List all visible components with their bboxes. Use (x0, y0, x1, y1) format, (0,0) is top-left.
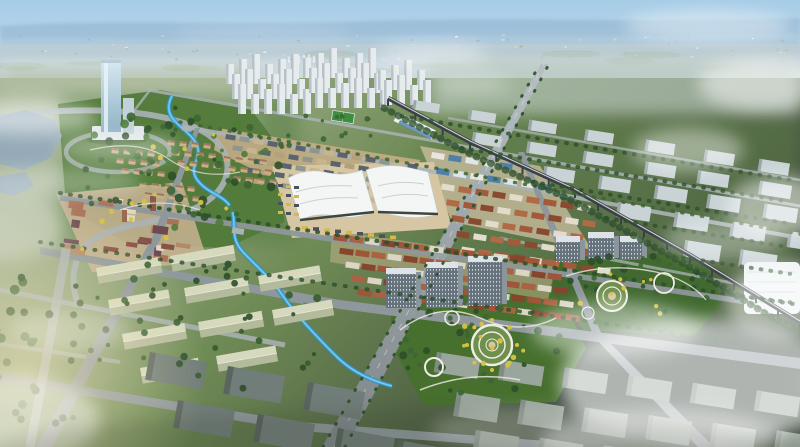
park-tree (465, 329, 469, 333)
distant-building (160, 37, 162, 38)
kiosk (368, 233, 374, 237)
tower-slab-shade (232, 74, 235, 99)
park-tree (168, 171, 177, 180)
park-tree (605, 253, 612, 260)
park-tree (254, 160, 258, 164)
kiosk (294, 204, 299, 207)
distant-building (618, 54, 620, 55)
distant-building (569, 36, 571, 38)
distant-building (668, 43, 670, 44)
park-tree (171, 224, 178, 231)
yellow-tree (142, 199, 147, 204)
distant-building (346, 45, 349, 46)
park-tree (194, 114, 201, 121)
distant-building (779, 52, 781, 53)
distant-building (565, 46, 567, 48)
yellow-tree (479, 335, 483, 339)
warehouse-tree (239, 385, 246, 392)
pier (548, 180, 550, 186)
rendering-canvas (0, 0, 800, 447)
tower-slab-shade (290, 94, 293, 114)
distant-building (329, 39, 332, 40)
distant-building (501, 39, 504, 40)
yellow-tree (163, 235, 168, 240)
warehouse-tree (312, 352, 316, 356)
yellow-tree (479, 322, 484, 327)
distant-building (338, 40, 341, 42)
tower-cap (101, 60, 121, 63)
park-tree (225, 178, 231, 184)
park-tree (567, 278, 574, 285)
distant-building (192, 51, 195, 52)
park-tree (139, 170, 143, 174)
warehouse-tree (300, 364, 306, 370)
kiosk (286, 203, 291, 206)
field-tree (286, 142, 292, 148)
field-tree (321, 119, 324, 122)
yellow-tree (129, 201, 133, 205)
kiosk (335, 230, 341, 234)
kiosk (278, 184, 283, 187)
office-roof (588, 232, 614, 238)
park-tree (175, 194, 184, 203)
park-tree (214, 161, 222, 169)
park-tree (597, 258, 603, 264)
yellow-tree (211, 133, 215, 137)
park-tree (212, 157, 216, 161)
field-tree (286, 133, 291, 138)
yellow-tree (481, 361, 486, 366)
park-tree (496, 304, 504, 312)
distant-building (661, 55, 663, 56)
park-tree (655, 258, 660, 263)
warehouse-tree (224, 261, 231, 268)
park-tree (522, 362, 527, 367)
kiosk (294, 195, 299, 198)
tower-slab-shade (384, 80, 387, 105)
distant-building (515, 46, 517, 47)
office-side (580, 240, 585, 260)
office-windows (468, 262, 502, 306)
kiosk (278, 202, 283, 205)
distant-building (625, 52, 627, 54)
distant-building (196, 50, 198, 52)
park-tree (161, 182, 166, 187)
yellow-tree (515, 343, 519, 347)
yellow-tree (465, 343, 469, 347)
park-tree (173, 128, 177, 132)
cloud (172, 27, 352, 41)
distant-building (44, 50, 47, 51)
distant-building (644, 37, 647, 38)
park-tree (407, 347, 413, 353)
distant-building (75, 53, 77, 55)
yellow-tree (649, 278, 653, 282)
park-tree (459, 295, 463, 299)
yellow-tree (609, 272, 613, 276)
distant-building (167, 52, 170, 54)
yellow-tree (185, 166, 190, 171)
park-tree (234, 212, 239, 217)
park-tree (423, 347, 430, 354)
office-roof (556, 236, 580, 242)
kiosk (294, 186, 299, 189)
park-tree (641, 284, 646, 289)
distant-building (561, 52, 563, 53)
office-side (502, 260, 507, 304)
park-tree (584, 284, 588, 288)
warehouse-tree (243, 317, 247, 321)
park-tree (406, 365, 411, 370)
distant-building (520, 46, 523, 48)
cloud (432, 75, 512, 93)
warehouse-tree (256, 337, 263, 344)
distant-building (161, 36, 164, 37)
distant-building (236, 54, 238, 56)
cloud (632, 128, 744, 172)
field-tree (259, 136, 263, 140)
distant-building (455, 36, 458, 38)
yellow-tree (462, 324, 467, 329)
distant-building (507, 39, 509, 41)
office-side (458, 266, 463, 306)
warehouse-tree (241, 292, 245, 296)
park-tree (274, 161, 282, 169)
field-tree (303, 114, 308, 119)
distant-building (126, 49, 128, 50)
yellow-tree (490, 368, 494, 372)
park-tree (228, 204, 236, 212)
yellow-tree (609, 292, 613, 296)
tower-slab-shade (251, 94, 254, 114)
tower-slab-shade (423, 80, 426, 105)
park-tree (170, 132, 175, 137)
warehouse-tree (193, 277, 200, 284)
park-tree (167, 186, 176, 195)
distant-building (356, 35, 358, 37)
park-tree (650, 253, 657, 260)
distant-building (87, 39, 89, 41)
tower-slab-shade (226, 64, 229, 84)
distant-building (614, 39, 617, 40)
tower-slab-shade (410, 85, 413, 105)
yellow-tree (490, 318, 494, 322)
park-tree (231, 178, 239, 186)
park-tree (578, 276, 583, 281)
park-tree (127, 112, 136, 121)
warehouse-tree (204, 269, 209, 274)
warehouse-tree (244, 275, 250, 281)
tower-slab-shade (264, 89, 267, 114)
warehouse-tree (305, 360, 311, 366)
park-tree (458, 390, 464, 396)
distant-building (613, 40, 615, 42)
kiosk (346, 231, 352, 235)
park-tree (201, 213, 209, 221)
cloud (56, 135, 180, 161)
yellow-tree (472, 361, 476, 365)
cloud (624, 10, 792, 42)
warehouse-tree (212, 345, 218, 351)
yellow-tree (621, 286, 626, 291)
distant-building (569, 56, 571, 57)
distant-building (476, 40, 479, 42)
yellow-tree (182, 147, 187, 152)
tower-slab-shade (238, 84, 241, 114)
tower-slab-shade (309, 68, 312, 93)
distant-building (112, 44, 115, 45)
yellow-tree (129, 217, 133, 221)
yellow-tree (198, 200, 203, 205)
park-tree (246, 124, 253, 131)
distant-building (785, 50, 788, 52)
aerial-city-rendering (0, 0, 800, 447)
park-tree (258, 151, 262, 155)
distant-building (578, 39, 581, 40)
mist (10, 310, 130, 350)
yellow-tree (490, 346, 495, 351)
distant-building (70, 54, 72, 56)
park-tree (591, 275, 596, 280)
warehouse-tree (313, 294, 321, 302)
distant-building (690, 56, 693, 58)
warehouse-tree (291, 312, 295, 316)
yellow-tree (521, 349, 525, 353)
kiosk (379, 234, 385, 238)
cloud (376, 43, 488, 65)
park-tree (488, 378, 494, 384)
warehouse-tree (224, 273, 231, 280)
park-tree (412, 353, 417, 358)
distant-building (635, 55, 637, 57)
park-tree (447, 316, 452, 321)
park-tree (448, 388, 452, 392)
field-tree (343, 131, 348, 136)
park-tree (588, 258, 596, 266)
park-tree (696, 283, 700, 287)
tower-slab-shade (303, 89, 306, 114)
park-tree (638, 263, 643, 268)
park-tree (267, 182, 276, 191)
park-tree (190, 211, 197, 218)
kiosk (390, 236, 396, 240)
distant-building (110, 56, 112, 57)
tower-slab-shade (328, 88, 331, 108)
park-tree (215, 219, 223, 227)
warehouse-tree (285, 291, 292, 298)
distant-building (162, 49, 164, 50)
distant-building (776, 49, 779, 51)
distant-building (263, 51, 266, 53)
field-tree (248, 133, 253, 138)
field-tree (340, 114, 345, 119)
kiosk (286, 194, 291, 197)
distant-building (781, 40, 783, 42)
distant-building (502, 34, 505, 35)
distant-building (731, 50, 733, 51)
distant-building (696, 47, 698, 48)
tower-slab-shade (378, 70, 381, 90)
yellow-tree (642, 280, 645, 283)
park-tree (668, 261, 673, 266)
tower-slab-shade (315, 78, 318, 108)
park-tree (244, 181, 252, 189)
tower-slab-shade (277, 84, 280, 114)
park-tree (147, 169, 152, 174)
distant-building (410, 39, 412, 41)
kiosk (294, 213, 299, 216)
park-tree (640, 256, 645, 261)
tower-highlight (104, 62, 108, 132)
tower-slab-shade (367, 88, 370, 108)
park-tree (399, 351, 407, 359)
park-tree (120, 119, 129, 128)
park-tree (694, 270, 699, 275)
yellow-tree (153, 193, 157, 197)
distant-building (283, 54, 285, 56)
tower-slab-shade (303, 58, 306, 78)
yellow-tree (511, 355, 517, 361)
field-tree (321, 136, 327, 142)
park-tree (403, 337, 409, 343)
tower-slab-shade (341, 83, 344, 108)
kiosk (286, 185, 291, 188)
park-tree (241, 151, 248, 158)
distant-building (125, 47, 128, 48)
field-tree (369, 134, 373, 138)
town-tower (122, 210, 127, 222)
distant-building (248, 53, 251, 54)
park-tree (465, 333, 470, 338)
park-tree (196, 155, 203, 162)
park-tree (187, 118, 194, 125)
kiosk (278, 211, 283, 214)
yellow-tree (497, 338, 502, 343)
distant-building (369, 39, 371, 41)
field-tree (335, 115, 339, 119)
park-tree (258, 173, 263, 178)
park-tree (231, 127, 236, 132)
park-tree (112, 197, 119, 204)
park-tree (262, 148, 268, 154)
park-tree (417, 362, 422, 367)
office-side (614, 236, 619, 258)
warehouse-tree (231, 280, 238, 287)
office-windows (620, 242, 642, 260)
kiosk (324, 228, 330, 232)
kiosk (286, 212, 291, 215)
office-roof (386, 268, 416, 274)
distant-building (41, 51, 44, 52)
yellow-tree (224, 206, 228, 210)
field-tree (364, 116, 370, 122)
cloud (664, 220, 784, 260)
yellow-tree (472, 325, 476, 329)
kiosk (357, 232, 363, 236)
mist (532, 302, 700, 358)
yellow-tree (508, 325, 512, 329)
park-tree (144, 127, 150, 133)
park-tree (220, 149, 224, 153)
warehouse-tree (239, 329, 244, 334)
park-tree (456, 329, 464, 337)
park-tree (690, 276, 695, 281)
field-tree (279, 144, 284, 149)
yellow-tree (508, 361, 512, 365)
park-tree (473, 308, 479, 314)
kiosk (278, 193, 283, 196)
park-tree (173, 106, 177, 110)
park-tree (511, 385, 518, 392)
tower-slab-shade (354, 78, 357, 108)
park-tree (530, 310, 534, 314)
distant-building (627, 52, 629, 53)
distant-building (19, 35, 21, 36)
pier (522, 168, 524, 174)
distant-building (49, 56, 51, 57)
office-windows (556, 242, 580, 262)
park-tree (165, 121, 173, 129)
yellow-tree (618, 277, 622, 281)
park-tree (160, 124, 166, 130)
park-tree (620, 265, 628, 273)
